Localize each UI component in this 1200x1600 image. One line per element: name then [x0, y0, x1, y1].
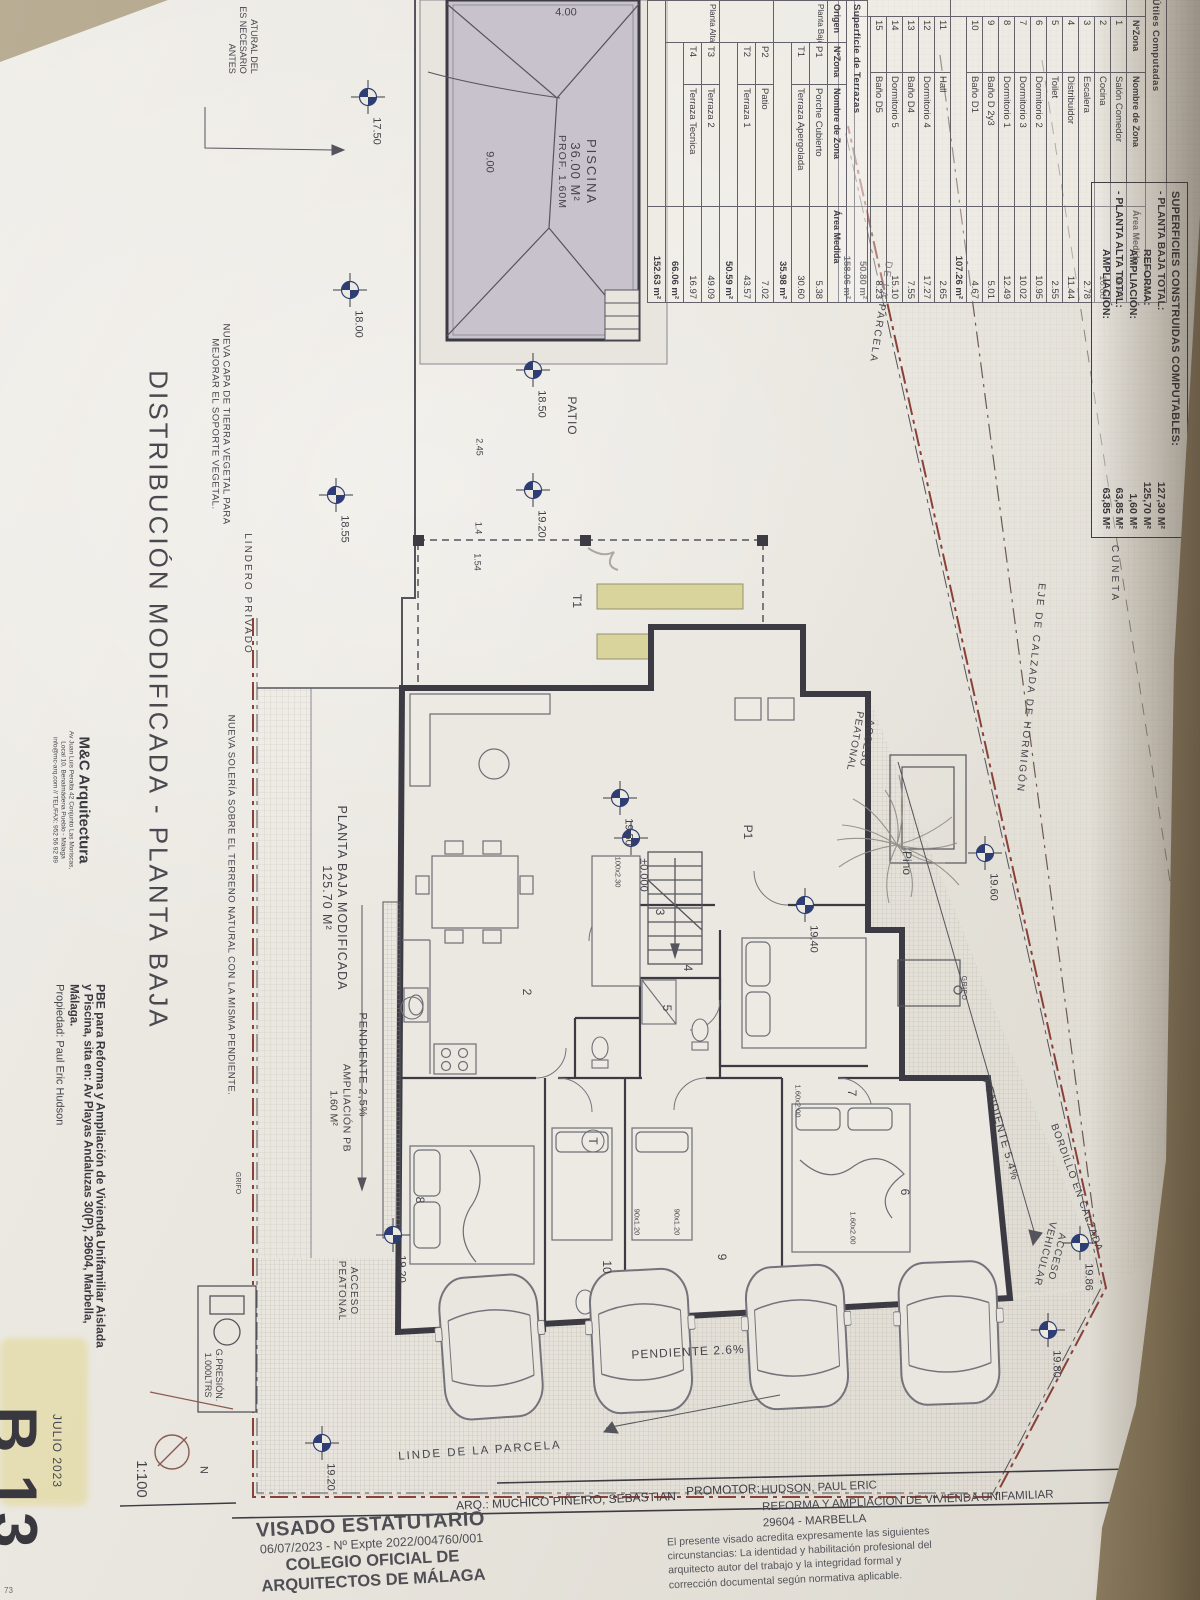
level-value: 19.80	[1049, 1350, 1062, 1378]
table-cell: 2.55	[1047, 207, 1063, 303]
table-cell: 1	[1111, 17, 1127, 73]
level-value: 19.60	[986, 873, 999, 901]
built-area-value: 127,30 M²	[1153, 482, 1167, 529]
level-value: ±0.000	[636, 858, 649, 892]
rotated-tables-layer: Superficies Útiles ComputadasNºZonaNombr…	[0, 0, 1200, 1600]
table-group: Planta Alta	[666, 1, 720, 43]
table-header: Área Medida	[828, 207, 847, 303]
table-cell: Terraza Apergolada	[792, 85, 810, 207]
table-cell: 2.65	[935, 207, 951, 303]
built-areas-title: SUPERFICIES CONSTRUIDAS COMPUTABLES:	[1169, 191, 1181, 529]
table-cell: 30.60	[792, 207, 810, 303]
table-cell: T4	[684, 43, 702, 85]
table-group: Planta Baja	[774, 1, 828, 43]
table-row: Planta Alta11Hall2.65	[935, 0, 951, 303]
visado-paragraph: El presente visado acredita expresamente…	[667, 1524, 934, 1592]
room-number: P1	[741, 825, 755, 840]
room-number: T1	[570, 594, 584, 608]
table-row: 7Dormitorio 310.02	[1015, 0, 1031, 303]
table-row: 13Baño D47.55	[903, 0, 919, 303]
table-cell: 14	[887, 17, 903, 73]
level-value: 18.00	[351, 310, 364, 338]
table-cell: 15.10	[887, 207, 903, 303]
table-cell: 2	[1095, 17, 1111, 73]
table-cell: Dormitorio 4	[919, 73, 935, 207]
table-cell: Baño D4	[903, 73, 919, 207]
room-number: 5	[660, 1005, 674, 1012]
table-cell: 12.49	[999, 207, 1015, 303]
table-row: 14Dormitorio 515.10	[887, 0, 903, 303]
table-cell: Baño D5	[871, 73, 887, 207]
table-group: Planta Alta	[855, 0, 951, 17]
dimension-value: 1.4	[473, 522, 484, 535]
table-cell: 43.57	[738, 207, 756, 303]
table-header	[1127, 0, 1146, 17]
built-area-label: AMPLIACIÓN:	[1125, 191, 1139, 319]
level-value: 19.50	[621, 818, 634, 846]
built-area-row: REFORMA:125,70 M²	[1139, 191, 1153, 529]
table-row: P2Patio7.02	[756, 1, 774, 303]
table-row: 10Baño D14.67	[967, 0, 983, 303]
built-area-value: 63,85 M²	[1098, 488, 1112, 529]
built-area-value: 1,60 M²	[1125, 493, 1139, 529]
table-cell: Baño D 2y3	[983, 73, 999, 207]
terraces-table: Superficie de TerrazasOrigenNºZonaNombre…	[647, 0, 868, 302]
table-cell: Toilet	[1047, 73, 1063, 207]
room-number: 9	[715, 1254, 729, 1261]
dimension-value: 2.45	[474, 438, 485, 456]
table-cell: 5	[1047, 17, 1063, 73]
table-cell: T2	[738, 43, 756, 85]
table-cell: 17.27	[919, 207, 935, 303]
built-area-row: AMPLIACIÓN:1,60 M²	[1125, 191, 1139, 529]
level-value: 19.20	[323, 1463, 336, 1491]
room-number: 2	[520, 989, 534, 996]
table-cell: 9	[983, 17, 999, 73]
room-number: 6	[898, 1189, 912, 1196]
built-area-label: - PLANTA BAJA TOTAL:	[1153, 191, 1167, 310]
built-area-row: - PLANTA ALTA TOTAL:63,85 M²	[1112, 191, 1126, 529]
room-number: T	[586, 1137, 600, 1144]
built-area-value: 125,70 M²	[1139, 482, 1153, 529]
room-number: 10	[600, 1260, 614, 1273]
table-subtotal: 107.26 m²	[951, 207, 967, 303]
built-area-label: AMPLIACIÓN:	[1098, 191, 1112, 319]
table-row: 8Dormitorio 112.49	[999, 0, 1015, 303]
room-number: 3	[653, 909, 667, 916]
table-group: Planta Baja	[951, 0, 1127, 17]
table-cell: 5.38	[810, 207, 828, 303]
table-cell: Dormitorio 5	[887, 73, 903, 207]
built-area-label: REFORMA:	[1139, 191, 1153, 306]
table-subtotal: 50.59 m²	[720, 207, 738, 303]
table-cell: P2	[756, 43, 774, 85]
table-cell: 7.55	[903, 207, 919, 303]
table-cell: 49.09	[702, 207, 720, 303]
fixture-dimension: 90x1.20	[673, 1209, 682, 1236]
table-cell: Porche Cubierto	[810, 85, 828, 207]
built-area-row: AMPLIACIÓN:63,85 M²	[1098, 191, 1112, 529]
fixture-dimension: 100x2.30	[614, 857, 623, 888]
table-cell: 4	[1063, 17, 1079, 73]
table-row: 6Dormitorio 210.95	[1031, 0, 1047, 303]
built-area-label: - PLANTA ALTA TOTAL:	[1112, 191, 1126, 308]
fixture-dimension: 1.60x2.00	[794, 1085, 803, 1118]
table-cell: 10.02	[1015, 207, 1031, 303]
table-cell: Distribuidor	[1063, 73, 1079, 207]
table-cell: Terraza Tecnica	[684, 85, 702, 207]
room-number: 8	[413, 1197, 427, 1204]
table-header: Origen	[828, 1, 847, 43]
table-cell: Dormitorio 2	[1031, 73, 1047, 207]
table-cell: 8	[999, 17, 1015, 73]
table-total: 152.63 m²	[648, 207, 666, 303]
table-cell: Hall	[935, 73, 951, 207]
table-cell: 11	[935, 17, 951, 73]
table-cell: 8.23	[871, 207, 887, 303]
level-value: 19.20	[394, 1255, 407, 1283]
table-row: Planta AltaT3Terraza 249.09	[702, 1, 720, 303]
built-area-value: 63,85 M²	[1112, 488, 1126, 529]
table-cell: 15	[871, 17, 887, 73]
table-header: Nombre de Zona	[828, 85, 847, 207]
cad-table: Superficie de TerrazasOrigenNºZonaNombre…	[647, 0, 868, 303]
table-cell: Dormitorio 3	[1015, 73, 1031, 207]
fixture-dimension: 1.60x2.00	[849, 1212, 858, 1245]
room-number: 4	[681, 965, 695, 972]
table-row: T1Terraza Apergolada30.60	[792, 1, 810, 303]
table-header: NºZona	[828, 43, 847, 85]
table-cell: Dormitorio 1	[999, 73, 1015, 207]
table-subtotal: 66.06 m²	[666, 207, 684, 303]
level-value: 19.20	[534, 510, 547, 538]
table-cell: 12	[919, 17, 935, 73]
dimension-value: 1.54	[472, 553, 483, 571]
table-cell: 5.01	[983, 207, 999, 303]
table-cell: 16.97	[684, 207, 702, 303]
table-group	[720, 1, 774, 43]
table-cell: 10	[967, 17, 983, 73]
drawing-sheet: DISTRIBUCIÓN MODIFICADA - PLANTA BAJA PI…	[0, 0, 1200, 1600]
table-header: NºZona	[1127, 17, 1146, 73]
table-cell: 4.67	[967, 207, 983, 303]
level-value: 18.55	[337, 515, 350, 543]
table-row: T4Terraza Tecnica16.97	[684, 1, 702, 303]
table-cell: T3	[702, 43, 720, 85]
visado-stamp: VISADO ESTATUTARIO 06/07/2023 - Nº Expte…	[256, 1507, 489, 1597]
table-cell: Patio	[756, 85, 774, 207]
table-cell: 13	[903, 17, 919, 73]
table-row: Planta BajaP1Porche Cubierto5.38	[810, 1, 828, 303]
table-cell: 10.95	[1031, 207, 1047, 303]
level-value: 17.50	[369, 117, 382, 145]
table-row: 12Dormitorio 417.27	[919, 0, 935, 303]
table-cell: Terraza 1	[738, 85, 756, 207]
table-cell: 6	[1031, 17, 1047, 73]
built-areas-box: SUPERFICIES CONSTRUIDAS COMPUTABLES: - P…	[1091, 182, 1188, 538]
room-number: 7	[845, 1090, 859, 1097]
table-row: T2Terraza 143.57	[738, 1, 756, 303]
table-cell: P1	[810, 43, 828, 85]
fixture-dimension: 90x1.20	[633, 1209, 642, 1236]
table-cell: T1	[792, 43, 810, 85]
level-value: 18.50	[534, 390, 547, 418]
table-row: 15Baño D58.23	[871, 0, 887, 303]
table-cell: 3	[1079, 17, 1095, 73]
built-area-row: - PLANTA BAJA TOTAL:127,30 M²	[1153, 191, 1167, 529]
table-cell: 7.02	[756, 207, 774, 303]
level-value: 19.40	[806, 925, 819, 953]
table-cell: 11.44	[1063, 207, 1079, 303]
table-row: 9Baño D 2y35.01	[983, 0, 999, 303]
table-cell: Baño D1	[967, 73, 983, 207]
table-row: 5Toilet2.55	[1047, 0, 1063, 303]
table-cell: Terraza 2	[702, 85, 720, 207]
table-cell: 7	[1015, 17, 1031, 73]
level-value: 19.86	[1081, 1263, 1094, 1291]
table-caption: Superficie de Terrazas	[847, 1, 868, 303]
table-subtotal: 35.98 m²	[774, 207, 792, 303]
table-row: 4Distribuidor11.44	[1063, 0, 1079, 303]
